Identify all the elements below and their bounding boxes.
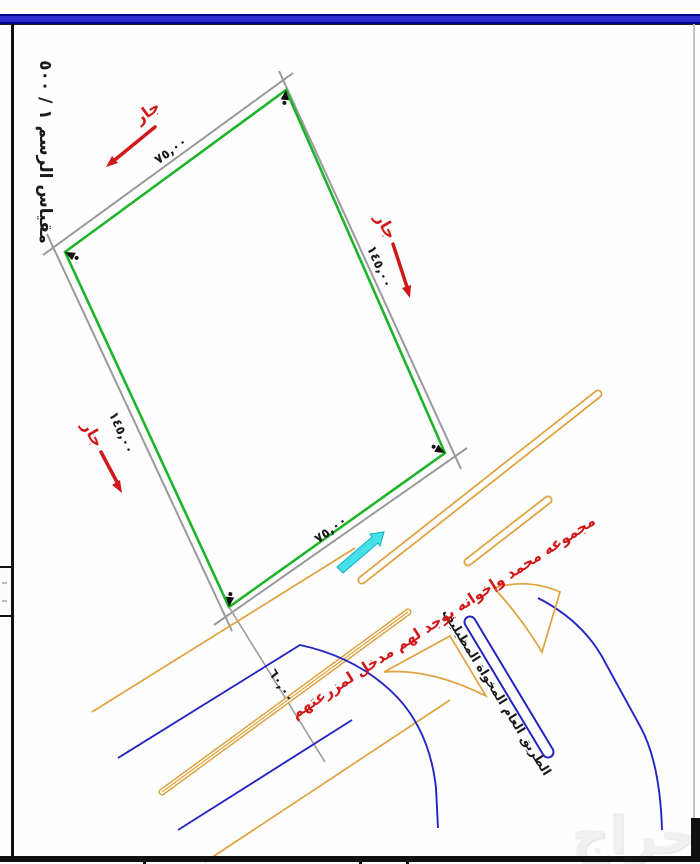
survey-sketch-page: مقياس الرسم ١ / ٥٠٠ ٧٥,٠٠ ١٤٥,٠٠ ١٤٥,٠٠ … bbox=[0, 0, 700, 864]
road-edges-blue bbox=[118, 598, 662, 830]
corner-marker-icon bbox=[63, 89, 447, 607]
red-neighbor-arrow-icon bbox=[101, 127, 411, 493]
title-block-divider bbox=[359, 856, 362, 864]
bottom-right-corner-block bbox=[691, 818, 700, 862]
title-block-divider bbox=[406, 856, 409, 864]
survey-drawing-canvas bbox=[0, 0, 700, 864]
drawing-scale-label: مقياس الرسم ١ / ٥٠٠ bbox=[35, 60, 55, 244]
title-block-divider bbox=[143, 856, 146, 864]
plot-boundary-green bbox=[65, 90, 445, 607]
title-block-top-bar bbox=[0, 856, 700, 862]
main-road-orange-edges bbox=[92, 548, 450, 862]
